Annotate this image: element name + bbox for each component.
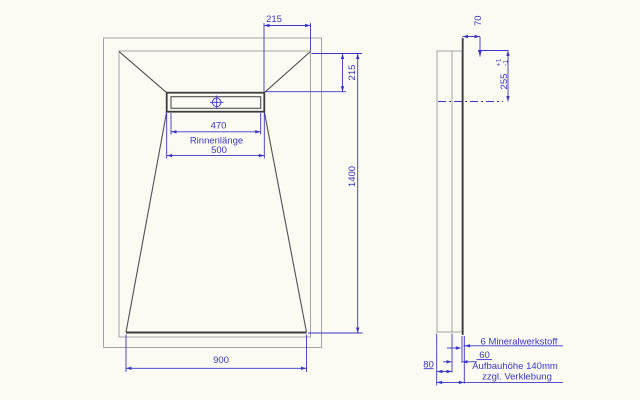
arrowhead <box>465 344 471 347</box>
arrowhead <box>463 35 469 38</box>
arrowhead <box>255 130 261 133</box>
dim-value: 60 <box>479 350 490 361</box>
dim-value: 80 <box>423 359 434 370</box>
arrowhead <box>167 154 173 157</box>
arrowhead <box>447 360 453 363</box>
arrowhead <box>341 54 344 60</box>
substructure-outline <box>437 51 462 332</box>
arrowhead <box>437 370 443 373</box>
slope-line-top-left <box>119 52 167 93</box>
arrowhead <box>478 51 481 57</box>
arrowhead <box>459 381 465 384</box>
dim-channel-visible-length-470: 470 <box>171 113 261 135</box>
slope-line-bottom-right <box>264 112 306 333</box>
arrowhead <box>456 346 462 349</box>
tolerance-minus: -1 <box>503 60 510 66</box>
tray-outer-outline <box>104 38 322 348</box>
dim-value: 1400 <box>347 166 358 187</box>
slope-line-top-right <box>264 52 310 93</box>
dim-value: 215 <box>347 65 358 81</box>
arrowhead <box>171 130 177 133</box>
tray-inner-outline <box>119 51 311 337</box>
arrowhead <box>341 86 344 92</box>
dim-channel-top-offset-215: 215 <box>266 54 363 92</box>
arrowhead <box>462 360 468 363</box>
dim-drain-axis-255: 255 +1 -1 <box>478 51 510 102</box>
technical-drawing-canvas: 215 215 1400 470 Rinnenlänge 500 <box>0 0 640 400</box>
dim-buildup-height-140: Aufbauhöhe 140mm zzgl. Verklebung <box>437 361 563 384</box>
side-bottom-dimensions: 6 Mineralwerkstoff 60 80 Aufbauhöhe 140m… <box>423 334 563 386</box>
arrowhead <box>437 381 443 384</box>
arrowhead <box>126 367 132 370</box>
dim-width-900: 900 <box>126 335 307 373</box>
arrowhead <box>356 54 359 60</box>
dim-channel-end-offset-215: 215 <box>264 14 311 92</box>
arrowhead <box>506 96 509 102</box>
side-view <box>437 38 503 335</box>
tolerance-plus: +1 <box>496 58 503 66</box>
plan-view <box>104 38 322 348</box>
arrowhead <box>301 367 307 370</box>
slope-line-bottom-left <box>126 112 167 333</box>
arrowhead <box>506 51 509 57</box>
material-label: 6 Mineralwerkstoff <box>481 336 558 347</box>
dim-value: 215 <box>266 14 282 25</box>
dim-value: 470 <box>211 121 227 132</box>
dim-value: 900 <box>213 355 229 366</box>
dim-value: 500 <box>211 145 227 156</box>
dim-length-1400: 1400 <box>308 54 363 334</box>
arrowhead <box>259 154 265 157</box>
buildup-label-line2: zzgl. Verklebung <box>482 371 552 382</box>
arrowhead <box>356 328 359 334</box>
arrowhead <box>447 370 453 373</box>
dim-value: 70 <box>473 15 484 26</box>
dim-value: 255 <box>499 74 510 90</box>
arrowhead <box>305 24 311 27</box>
drain-crosshair-icon <box>210 96 223 109</box>
arrowhead <box>475 35 481 38</box>
